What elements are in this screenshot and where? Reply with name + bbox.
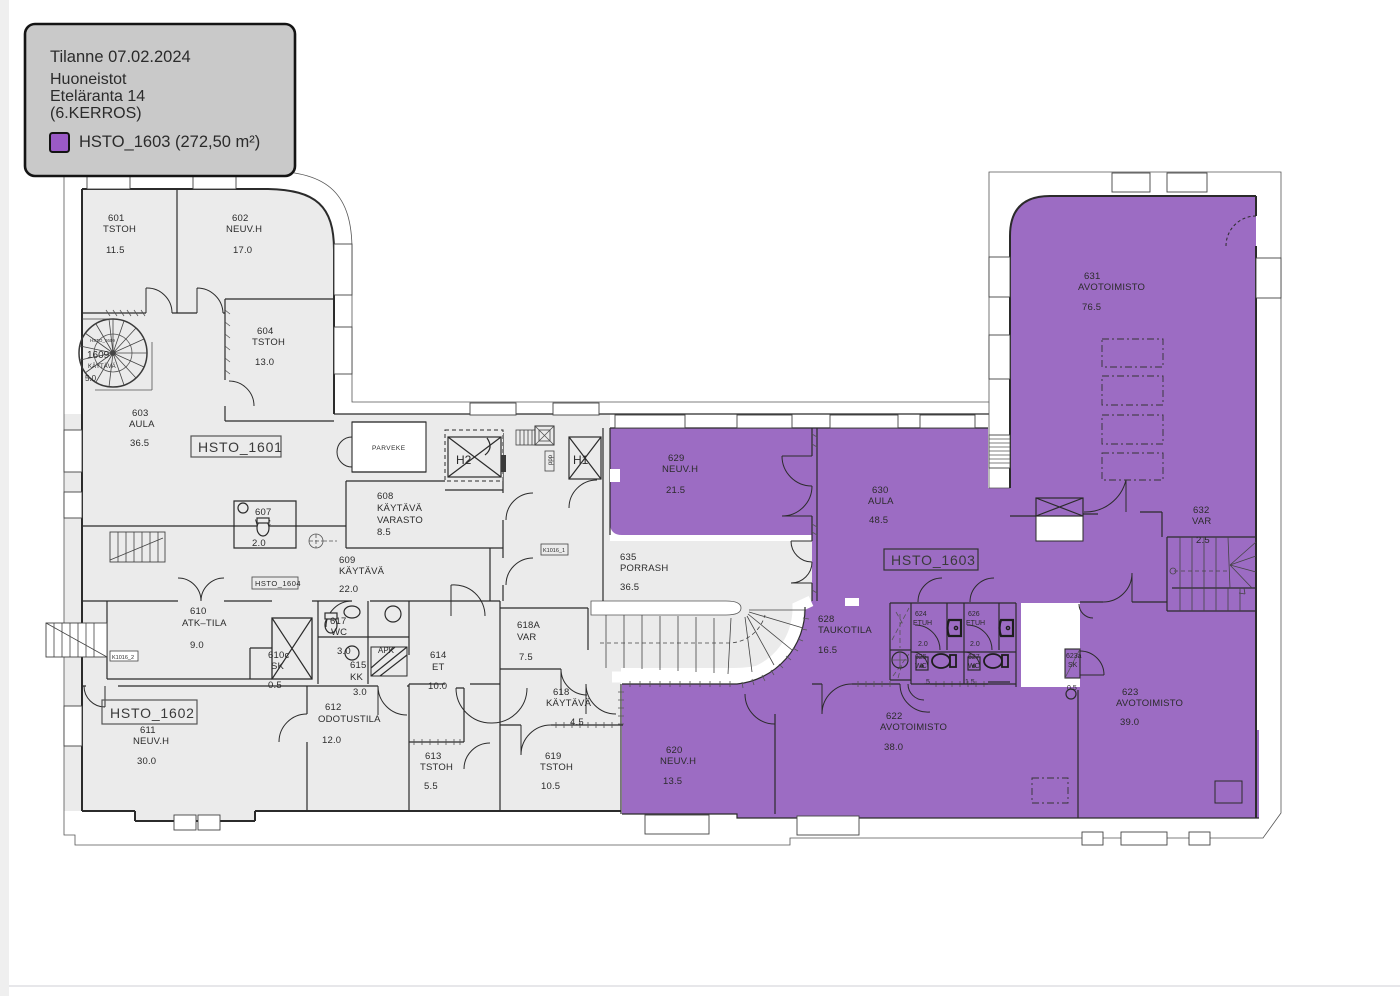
svg-text:604: 604 [257, 326, 273, 337]
svg-text:614: 614 [430, 650, 446, 661]
svg-text:AVOTOIMISTO: AVOTOIMISTO [1116, 698, 1183, 709]
svg-text:3.0: 3.0 [337, 646, 351, 657]
svg-text:38.0: 38.0 [884, 742, 903, 753]
svg-text:620: 620 [666, 745, 682, 756]
svg-text:619: 619 [545, 751, 561, 762]
svg-text:628: 628 [818, 614, 834, 625]
svg-text:627: 627 [968, 654, 980, 661]
svg-text:Tilanne 07.02.2024: Tilanne 07.02.2024 [50, 48, 191, 66]
svg-text:17.0: 17.0 [233, 245, 252, 256]
svg-text:HSTO_1604: HSTO_1604 [255, 579, 301, 588]
svg-text:1.5: 1.5 [965, 679, 975, 686]
svg-text:HSTO_1603 (272,50 m²): HSTO_1603 (272,50 m²) [79, 133, 260, 151]
svg-text:9.0: 9.0 [190, 640, 204, 651]
svg-text:NEUV.H: NEUV.H [660, 756, 696, 767]
svg-text:VAR: VAR [1192, 516, 1211, 527]
svg-text:WC: WC [331, 627, 347, 638]
svg-text:2.5: 2.5 [1196, 535, 1210, 546]
svg-text:NEUV.H: NEUV.H [133, 736, 169, 747]
svg-text:SK: SK [271, 661, 285, 672]
svg-text:ODOTUSTILA: ODOTUSTILA [318, 714, 381, 725]
svg-text:1609: 1609 [87, 350, 110, 361]
svg-text:TAUKOTILA: TAUKOTILA [818, 625, 872, 636]
svg-text:12.0: 12.0 [322, 735, 341, 746]
svg-text:603: 603 [132, 408, 148, 419]
svg-text:KÄYTÄVÄ: KÄYTÄVÄ [546, 698, 592, 709]
svg-text:630: 630 [872, 485, 888, 496]
svg-text:618A: 618A [517, 620, 540, 631]
svg-text:K1016_2: K1016_2 [112, 655, 134, 661]
svg-text:607: 607 [255, 507, 271, 518]
svg-text:APK: APK [378, 646, 395, 655]
svg-text:VARASTO: VARASTO [377, 515, 423, 526]
svg-text:610: 610 [190, 606, 206, 617]
svg-text:2.0: 2.0 [970, 641, 980, 648]
svg-text:VAR: VAR [517, 632, 536, 643]
svg-text:48.5: 48.5 [869, 515, 888, 526]
svg-text:5.0: 5.0 [85, 374, 97, 383]
svg-text:609: 609 [339, 555, 355, 566]
svg-text:635: 635 [620, 552, 636, 563]
svg-text:612: 612 [325, 702, 341, 713]
svg-text:16.5: 16.5 [818, 645, 837, 656]
svg-text:0.5: 0.5 [268, 680, 282, 691]
svg-text:K1016_1: K1016_1 [543, 548, 565, 554]
svg-text:KÄYTÄVÄ: KÄYTÄVÄ [339, 566, 385, 577]
svg-text:2.0: 2.0 [918, 641, 928, 648]
svg-text:PARVEKE: PARVEKE [372, 445, 406, 452]
svg-text:5.5: 5.5 [424, 781, 438, 792]
svg-text:21.5: 21.5 [666, 485, 685, 496]
svg-text:13.0: 13.0 [255, 357, 274, 368]
svg-text:AVOTOIMISTO: AVOTOIMISTO [1078, 282, 1145, 293]
svg-text:36.5: 36.5 [130, 438, 149, 449]
svg-text:608: 608 [377, 491, 393, 502]
svg-text:HSTO_1602: HSTO_1602 [110, 705, 195, 721]
svg-text:631: 631 [1084, 271, 1100, 282]
svg-text:WC: WC [968, 663, 980, 670]
svg-text:HSTO_1603: HSTO_1603 [891, 552, 976, 568]
svg-text:TSTOH: TSTOH [103, 224, 136, 235]
svg-text:ETUH: ETUH [913, 620, 932, 627]
svg-text:624: 624 [915, 611, 927, 618]
svg-text:623a: 623a [1066, 653, 1082, 660]
svg-text:13.5: 13.5 [663, 776, 682, 787]
svg-text:36.5: 36.5 [620, 582, 639, 593]
svg-text:8.5: 8.5 [377, 527, 391, 538]
svg-text:H1: H1 [573, 453, 589, 467]
svg-text:KK: KK [350, 672, 364, 683]
svg-text:WC: WC [915, 663, 927, 670]
svg-text:HSTO_1609: HSTO_1609 [90, 338, 115, 343]
svg-text:(6.KERROS): (6.KERROS) [50, 105, 142, 122]
svg-text:622: 622 [886, 711, 902, 722]
svg-text:615: 615 [350, 660, 366, 671]
svg-text:SK: SK [1068, 662, 1078, 669]
svg-text:3.0: 3.0 [353, 687, 367, 698]
svg-text:ET: ET [432, 662, 445, 673]
svg-text:22.0: 22.0 [339, 584, 358, 595]
svg-text:610c: 610c [268, 650, 289, 661]
svg-text:601: 601 [108, 213, 124, 224]
svg-text:TSTOH: TSTOH [252, 337, 285, 348]
svg-text:ppp: ppp [548, 454, 554, 465]
svg-text:KÄYTÄVÄ: KÄYTÄVÄ [88, 363, 116, 370]
svg-text:2.0: 2.0 [252, 538, 266, 549]
svg-text:626: 626 [968, 611, 980, 618]
svg-text:629: 629 [668, 453, 684, 464]
svg-text:AVOTOIMISTO: AVOTOIMISTO [880, 722, 947, 733]
svg-text:10.5: 10.5 [541, 781, 560, 792]
svg-text:PORRASH: PORRASH [620, 563, 668, 574]
svg-text:602: 602 [232, 213, 248, 224]
svg-text:76.5: 76.5 [1082, 302, 1101, 313]
svg-text:TSTOH: TSTOH [540, 762, 573, 773]
svg-text:Eteläranta 14: Eteläranta 14 [50, 88, 145, 105]
svg-text:KÄYTÄVÄ: KÄYTÄVÄ [377, 503, 423, 514]
svg-text:613: 613 [425, 751, 441, 762]
svg-text:611: 611 [140, 725, 156, 736]
svg-text:H2: H2 [456, 453, 472, 467]
svg-text:618: 618 [553, 687, 569, 698]
svg-text:632: 632 [1193, 505, 1209, 516]
svg-text:.5: .5 [924, 679, 930, 686]
svg-text:625: 625 [915, 654, 927, 661]
svg-text:HSTO_1601: HSTO_1601 [198, 439, 283, 455]
svg-text:0.5: 0.5 [1067, 685, 1077, 692]
svg-text:AULA: AULA [868, 496, 894, 507]
svg-text:10.0: 10.0 [428, 681, 447, 692]
svg-text:ATK–TILA: ATK–TILA [182, 618, 227, 629]
svg-text:39.0: 39.0 [1120, 717, 1139, 728]
svg-text:30.0: 30.0 [137, 756, 156, 767]
svg-text:NEUV.H: NEUV.H [226, 224, 262, 235]
svg-text:NEUV.H: NEUV.H [662, 464, 698, 475]
svg-text:TSTOH: TSTOH [420, 762, 453, 773]
svg-text:617: 617 [330, 616, 346, 627]
svg-text:7.5: 7.5 [519, 652, 533, 663]
svg-text:623: 623 [1122, 687, 1138, 698]
svg-text:11.5: 11.5 [106, 245, 125, 256]
svg-text:ETUH: ETUH [966, 620, 985, 627]
svg-text:Huoneistot: Huoneistot [50, 71, 127, 88]
svg-text:4.5: 4.5 [570, 717, 584, 728]
svg-text:AULA: AULA [129, 419, 155, 430]
